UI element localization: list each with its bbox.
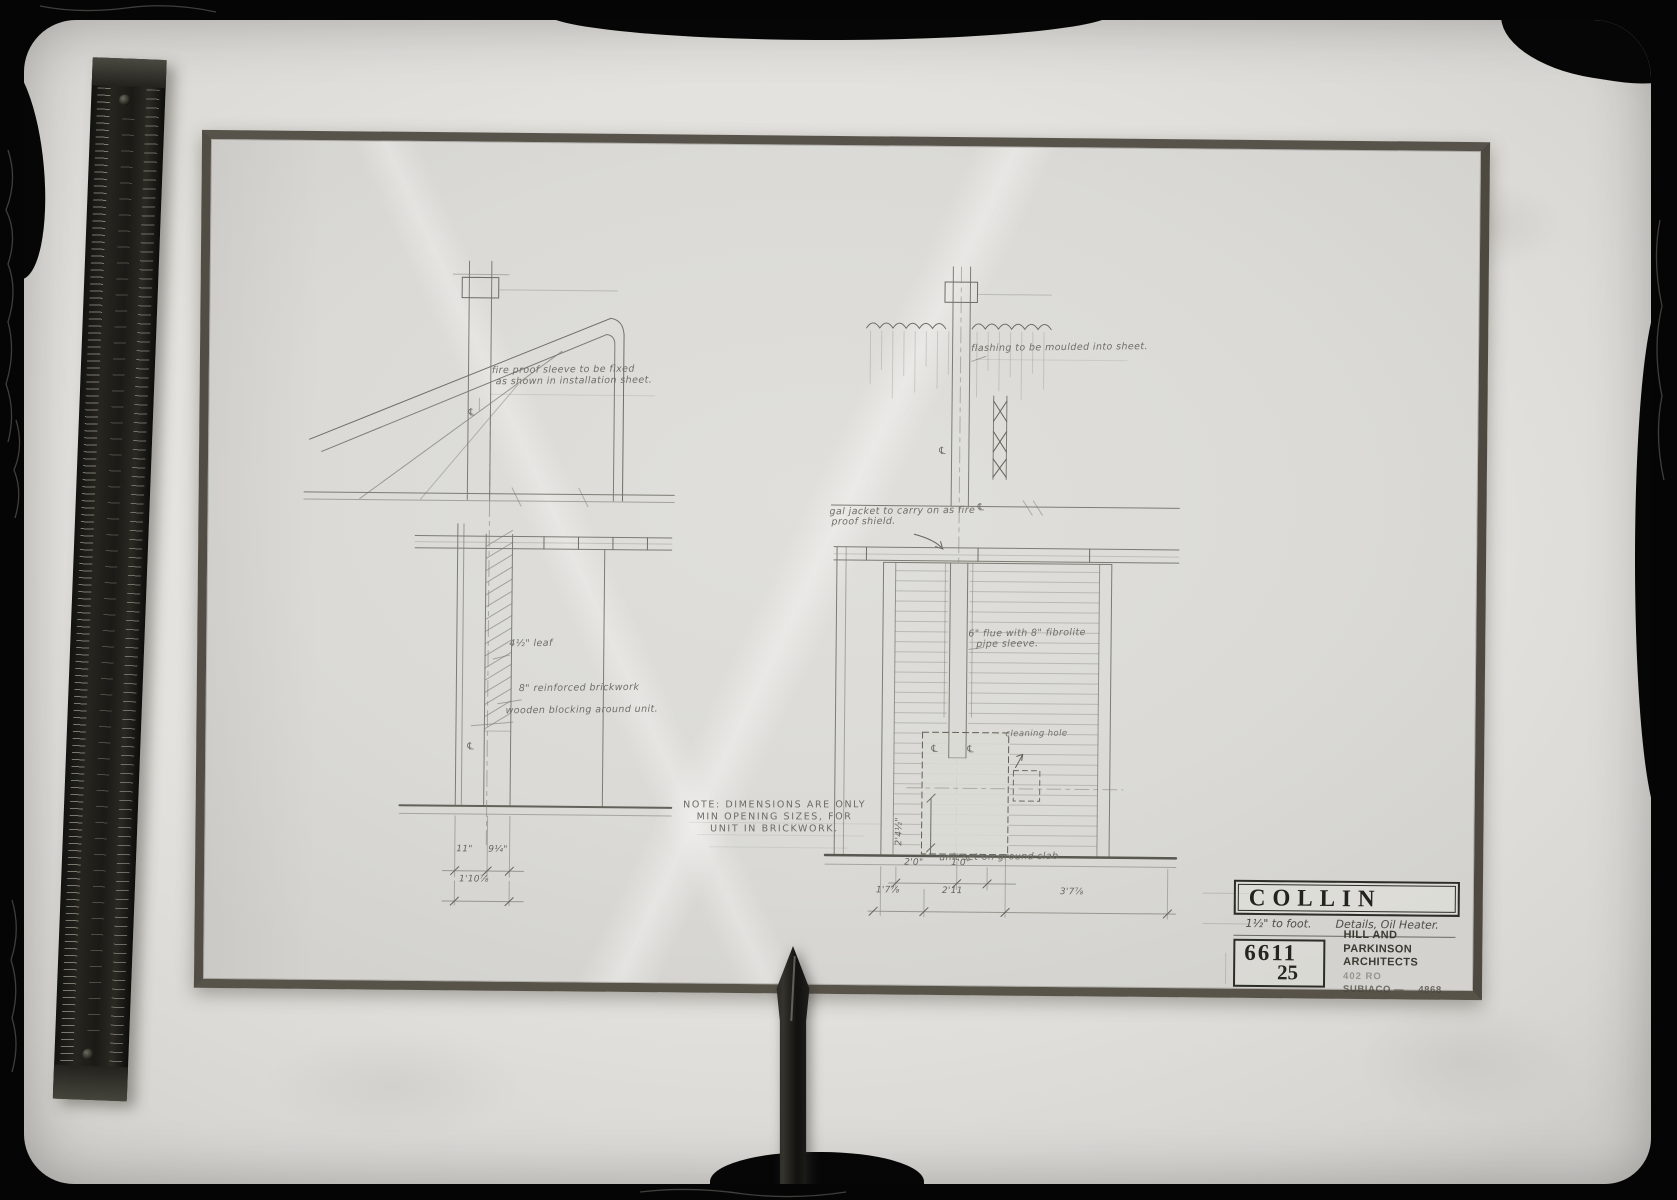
film-border (1635, 300, 1651, 820)
centerline-symbol: ℄ (939, 446, 946, 457)
title-block-number-box: 6611 25 (1233, 939, 1325, 988)
firm-city-phone: SUBIACO —4868 (1343, 982, 1455, 996)
dim-1ft7: 1'7⅞ (876, 885, 900, 895)
note-line2: MIN OPENING SIZES, FOR (675, 811, 875, 822)
scale-ruler (53, 57, 167, 1101)
centerline-symbol: ℄ (931, 744, 938, 755)
centerline-symbol: ℄ (978, 502, 985, 513)
dim-3ft7: 3'7⅞ (1060, 887, 1084, 897)
firm-city: SUBIACO — (1343, 983, 1404, 995)
sheet-content: fire proof sleeve to be fixed as shown i… (203, 139, 1481, 991)
dim-1ft0: 1'0" (951, 858, 970, 868)
firm-address: 402 RO (1343, 969, 1455, 983)
ruler-end-cap (92, 57, 167, 88)
smudge (1354, 1000, 1574, 1120)
sheet-number: 25 (1277, 960, 1298, 985)
photograph-of-architectural-drawing: { "colors": { "background": "#060606", "… (0, 0, 1677, 1200)
cleaning-hole-label: cleaning hole (1005, 729, 1067, 740)
smudge (264, 1030, 524, 1140)
flashing-note: flashing to be moulded into sheet. (971, 341, 1148, 354)
dim-9quarter: 9¼" (488, 845, 508, 855)
ruler-screw (119, 94, 130, 105)
ruler-graduations (87, 118, 134, 1040)
drawing-sheet: fire proof sleeve to be fixed as shown i… (194, 130, 1490, 1000)
note-line3: UNIT IN BRICKWORK. (674, 823, 874, 834)
firm-type: ARCHITECTS (1343, 956, 1455, 971)
centerline-symbol: ℄ (467, 741, 474, 752)
light-table-surface: fire proof sleeve to be fixed as shown i… (24, 20, 1651, 1184)
drawing-linework (203, 139, 1481, 991)
centerline-symbol: ℄ (468, 407, 475, 418)
firm-phone: 4868 (1418, 984, 1442, 995)
film-border (1494, 20, 1651, 97)
title-block-client-box: COLLIN (1234, 880, 1460, 917)
dim-2ft11: 2'11 (942, 886, 963, 896)
title-block-firm: HILL AND PARKINSON ARCHITECTS 402 RO SUB… (1343, 929, 1456, 997)
leaf-label: 4½" leaf (509, 638, 553, 649)
pointer-tool (752, 946, 834, 1184)
sleeve-note-line2: as shown in installation sheet. (496, 375, 652, 388)
dim-11in: 11" (456, 844, 473, 854)
dim-1ft10: 1'10⅞ (459, 874, 489, 884)
ruler-screw (82, 1049, 93, 1060)
blocking-label: wooden blocking around unit. (506, 704, 659, 717)
flue-note-line2: pipe sleeve. (976, 638, 1038, 650)
dim-2ft4half: 2'4½" (894, 817, 904, 845)
client-name: COLLIN (1236, 884, 1382, 912)
brickwork-label: 8" reinforced brickwork (519, 682, 640, 694)
jacket-note-line2: proof shield. (831, 516, 895, 528)
note-line1: NOTE: DIMENSIONS ARE ONLY (675, 799, 875, 810)
ruler-end-cap (53, 1065, 128, 1102)
firm-name: HILL AND PARKINSON (1343, 929, 1455, 957)
film-border (544, 20, 1114, 40)
film-border (24, 58, 53, 283)
dim-2ft0: 2'0" (904, 858, 923, 868)
centerline-symbol: ℄ (967, 744, 974, 755)
drawing-scale: 1½" to foot. (1246, 917, 1312, 931)
